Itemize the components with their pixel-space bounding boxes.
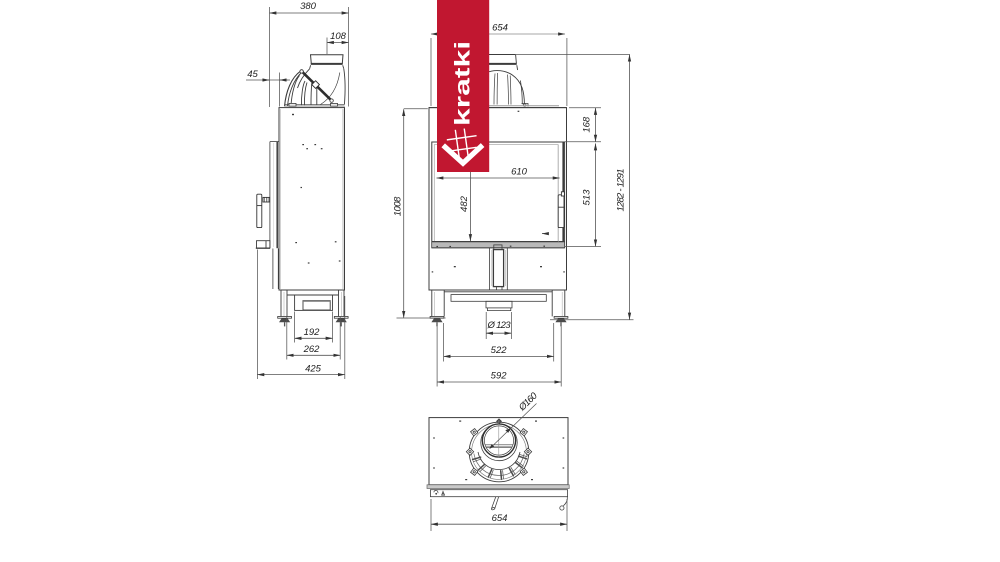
svg-text:262: 262	[303, 344, 321, 355]
svg-text:610: 610	[511, 166, 528, 177]
svg-text:kratki: kratki	[451, 41, 474, 126]
svg-text:Ø160: Ø160	[516, 390, 540, 414]
svg-text:192: 192	[304, 327, 321, 338]
svg-text:482: 482	[459, 195, 470, 212]
svg-text:1282 - 1291: 1282 - 1291	[616, 169, 627, 212]
svg-text:522: 522	[491, 345, 508, 356]
svg-text:1008: 1008	[393, 196, 404, 216]
svg-text:513: 513	[582, 189, 593, 206]
svg-text:168: 168	[582, 116, 593, 133]
svg-text:592: 592	[491, 371, 508, 382]
svg-text:380: 380	[300, 1, 317, 12]
svg-text:108: 108	[330, 31, 347, 42]
svg-text:45: 45	[247, 69, 258, 80]
svg-text:425: 425	[305, 363, 322, 374]
svg-text:Ø 123: Ø 123	[487, 320, 512, 331]
svg-text:654: 654	[492, 23, 508, 34]
svg-text:654: 654	[492, 513, 508, 524]
